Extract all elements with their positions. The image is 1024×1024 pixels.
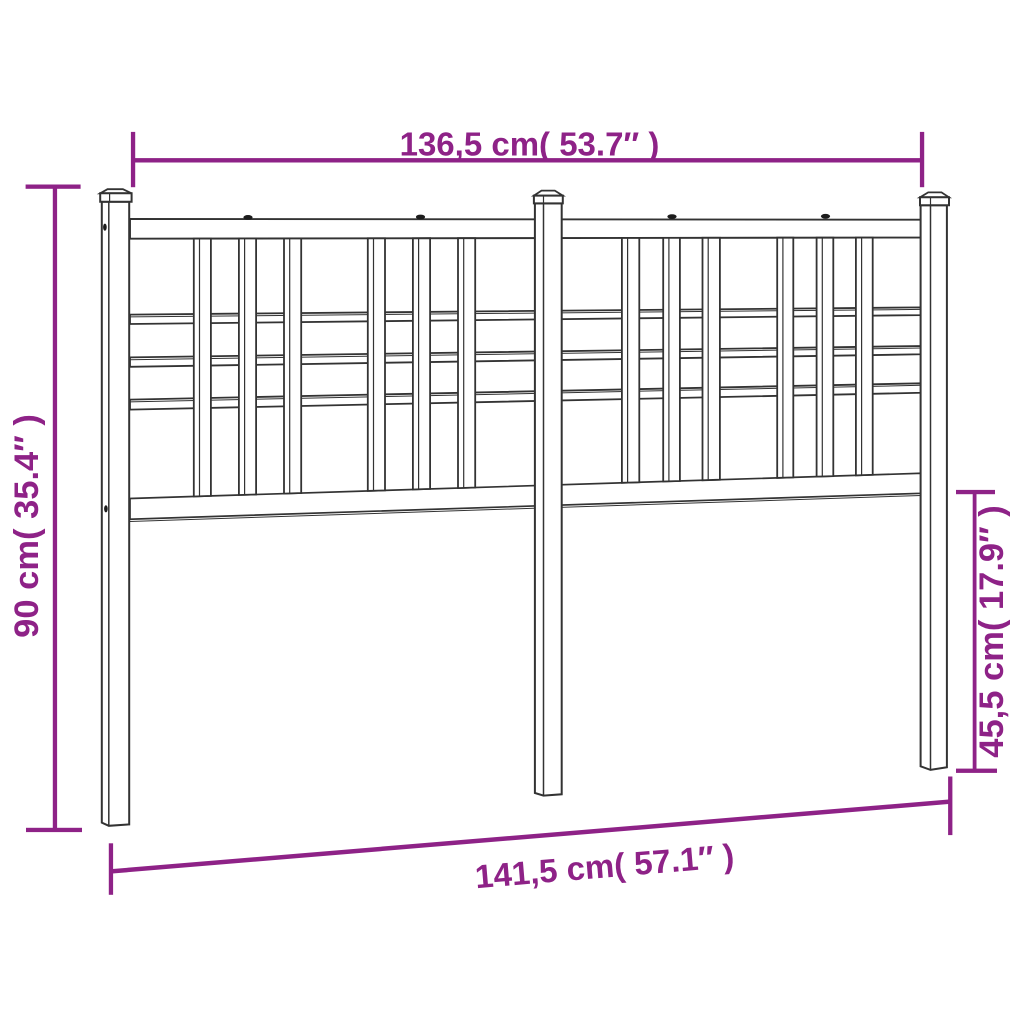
svg-text:136,5 cm( 53.7″ ): 136,5 cm( 53.7″ ) [400,125,660,162]
svg-text:45,5 cm( 17.9″ ): 45,5 cm( 17.9″ ) [973,505,1011,757]
svg-text:90 cm( 35.4″ ): 90 cm( 35.4″ ) [8,414,46,638]
